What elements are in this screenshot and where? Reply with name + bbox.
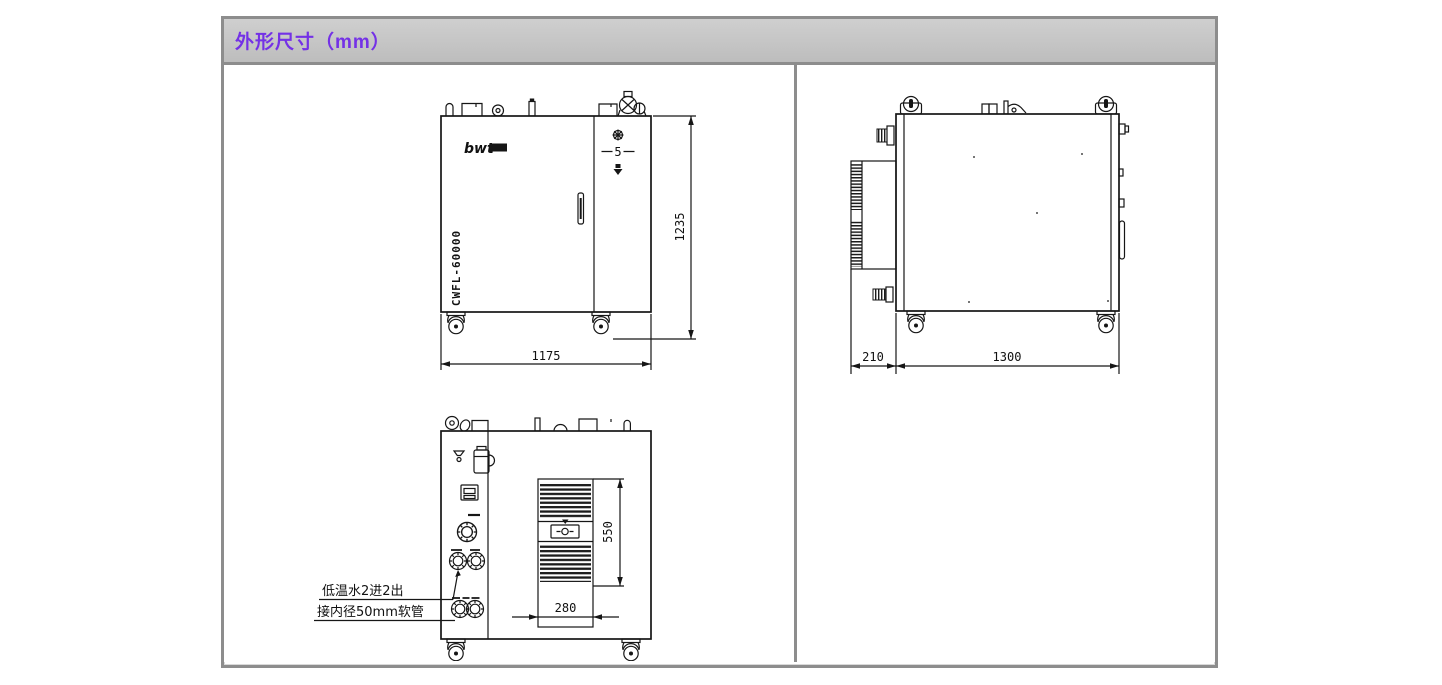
right-drawing-cell: 210 1300	[797, 65, 1215, 662]
left-drawing-cell: bwt CWFL-60000 5	[224, 65, 797, 662]
hose-note-line1: 低温水2进2出	[322, 584, 404, 599]
panel-body: bwt CWFL-60000 5	[224, 65, 1215, 662]
front-width-value: 1175	[532, 349, 561, 363]
hose-note-line2: 接内径50mm软管	[317, 604, 424, 620]
dim-front-width: 1175	[441, 314, 651, 370]
side-right-details	[1119, 124, 1129, 259]
side-cabinet-body	[896, 114, 1119, 311]
side-view: 210 1300	[851, 97, 1129, 375]
condenser-protrusion	[851, 161, 896, 269]
rear-caster-left	[447, 639, 465, 661]
front-and-rear-drawing: bwt CWFL-60000 5	[224, 65, 797, 661]
pipe-fitting-upper	[877, 126, 894, 145]
panel-title: 外形尺寸（mm）	[235, 27, 391, 54]
top-valve-fitting	[618, 92, 646, 117]
front-view: bwt CWFL-60000 5	[441, 92, 696, 371]
lifting-eye-left	[901, 97, 922, 115]
hose-annotation: 低温水2进2出 接内径50mm软管	[314, 570, 461, 621]
logo-cjk-mark	[490, 144, 507, 152]
lifting-eye-right	[1096, 97, 1117, 115]
side-drawing: 210 1300	[797, 65, 1212, 661]
side-caster-right	[1097, 311, 1115, 333]
model-label: CWFL-60000	[450, 230, 463, 306]
front-caster-right	[592, 312, 610, 334]
vent-width-value: 280	[555, 601, 577, 615]
side-caster-left	[907, 311, 925, 333]
depth-value: 1300	[993, 350, 1022, 364]
vent-height-value: 550	[601, 521, 615, 543]
rear-caster-right	[622, 639, 640, 661]
panel-header: 外形尺寸（mm）	[224, 19, 1215, 65]
front-top-fittings	[446, 92, 646, 117]
outline-dimensions-panel: 外形尺寸（mm）	[221, 16, 1218, 668]
rear-offset-value: 210	[862, 350, 884, 364]
front-caster-left	[447, 312, 465, 334]
front-height-value: 1235	[673, 213, 687, 242]
rear-view: 550 280 低温水2进2出	[314, 417, 651, 661]
pipe-fitting-lower	[873, 287, 893, 302]
page: 外形尺寸（mm）	[0, 0, 1442, 685]
display-value: 5	[614, 145, 621, 159]
side-top-fittings	[982, 101, 1026, 114]
